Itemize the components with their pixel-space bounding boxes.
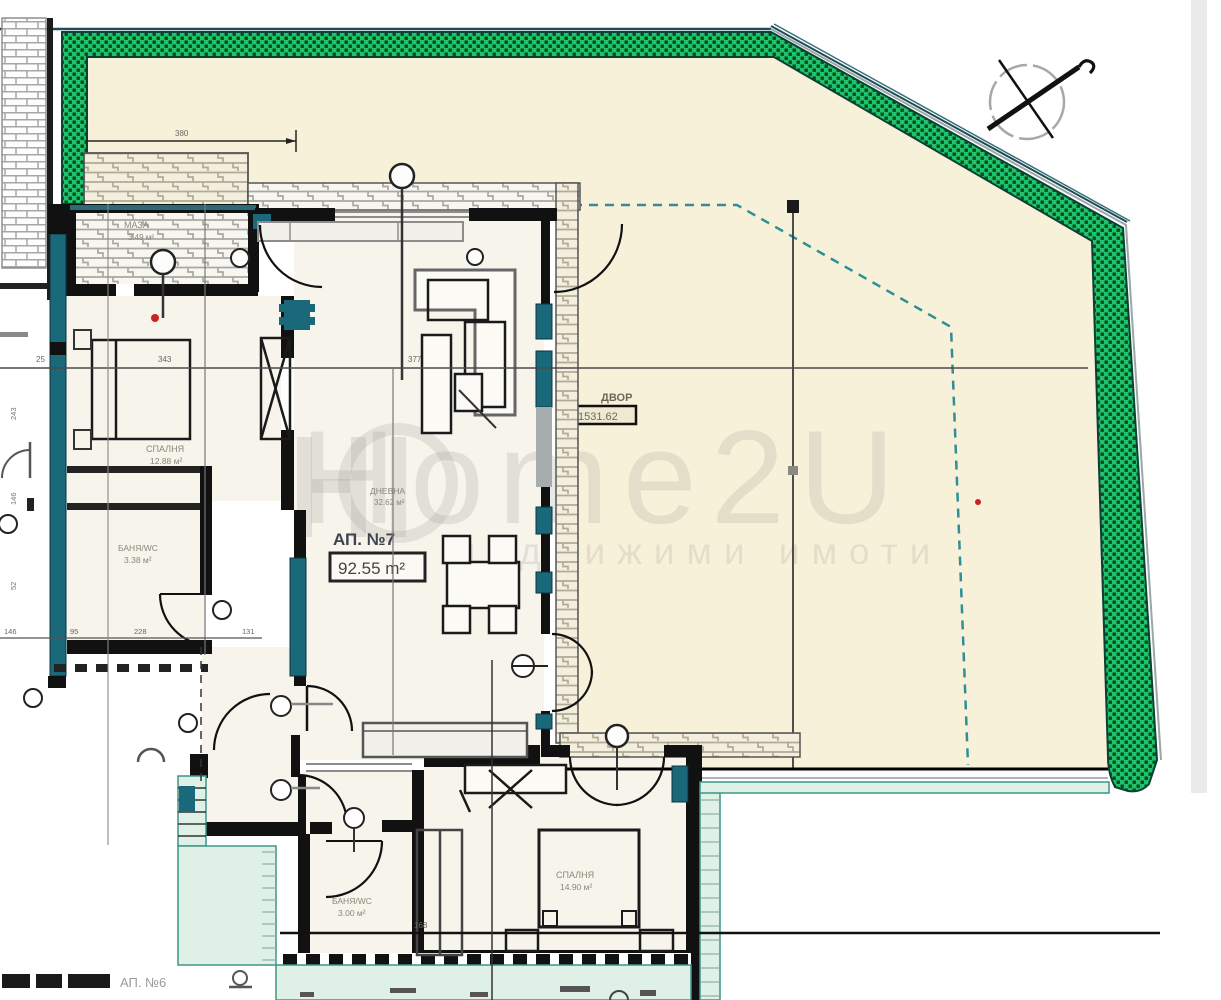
svg-text:1531.62: 1531.62 <box>578 411 618 423</box>
svg-text:СПАЛНЯ: СПАЛНЯ <box>556 870 594 880</box>
svg-text:92.55 m²: 92.55 m² <box>338 559 405 578</box>
svg-text:3.49 м²: 3.49 м² <box>128 233 154 242</box>
svg-text:3.38 м²: 3.38 м² <box>124 555 152 565</box>
svg-text:343: 343 <box>158 355 172 364</box>
svg-text:32.62 м²: 32.62 м² <box>374 498 405 507</box>
svg-text:ДНЕВНА: ДНЕВНА <box>370 486 405 496</box>
svg-text:168: 168 <box>414 921 428 930</box>
svg-text:3.00 м²: 3.00 м² <box>338 908 366 918</box>
svg-text:146: 146 <box>4 627 17 636</box>
svg-text:52: 52 <box>9 582 18 590</box>
svg-text:12.88 м²: 12.88 м² <box>150 456 182 466</box>
svg-text:БАНЯ/WC: БАНЯ/WC <box>118 543 158 553</box>
svg-text:АП. №7: АП. №7 <box>333 530 395 549</box>
svg-text:недвижими имоти: недвижими имоти <box>455 531 942 572</box>
svg-text:228: 228 <box>134 627 147 636</box>
svg-text:380: 380 <box>175 129 189 138</box>
svg-text:243: 243 <box>9 407 18 420</box>
svg-text:МАЗА: МАЗА <box>124 220 149 230</box>
svg-text:ДВОР: ДВОР <box>601 392 632 404</box>
svg-text:377: 377 <box>408 355 422 364</box>
svg-text:131: 131 <box>242 627 255 636</box>
svg-text:25: 25 <box>36 355 45 364</box>
svg-text:146: 146 <box>9 492 18 505</box>
svg-text:БАНЯ/WC: БАНЯ/WC <box>332 896 372 906</box>
svg-text:СПАЛНЯ: СПАЛНЯ <box>146 444 184 454</box>
svg-text:95: 95 <box>70 627 78 636</box>
svg-text:14.90 м²: 14.90 м² <box>560 882 592 892</box>
svg-text:АП. №6: АП. №6 <box>120 975 166 990</box>
